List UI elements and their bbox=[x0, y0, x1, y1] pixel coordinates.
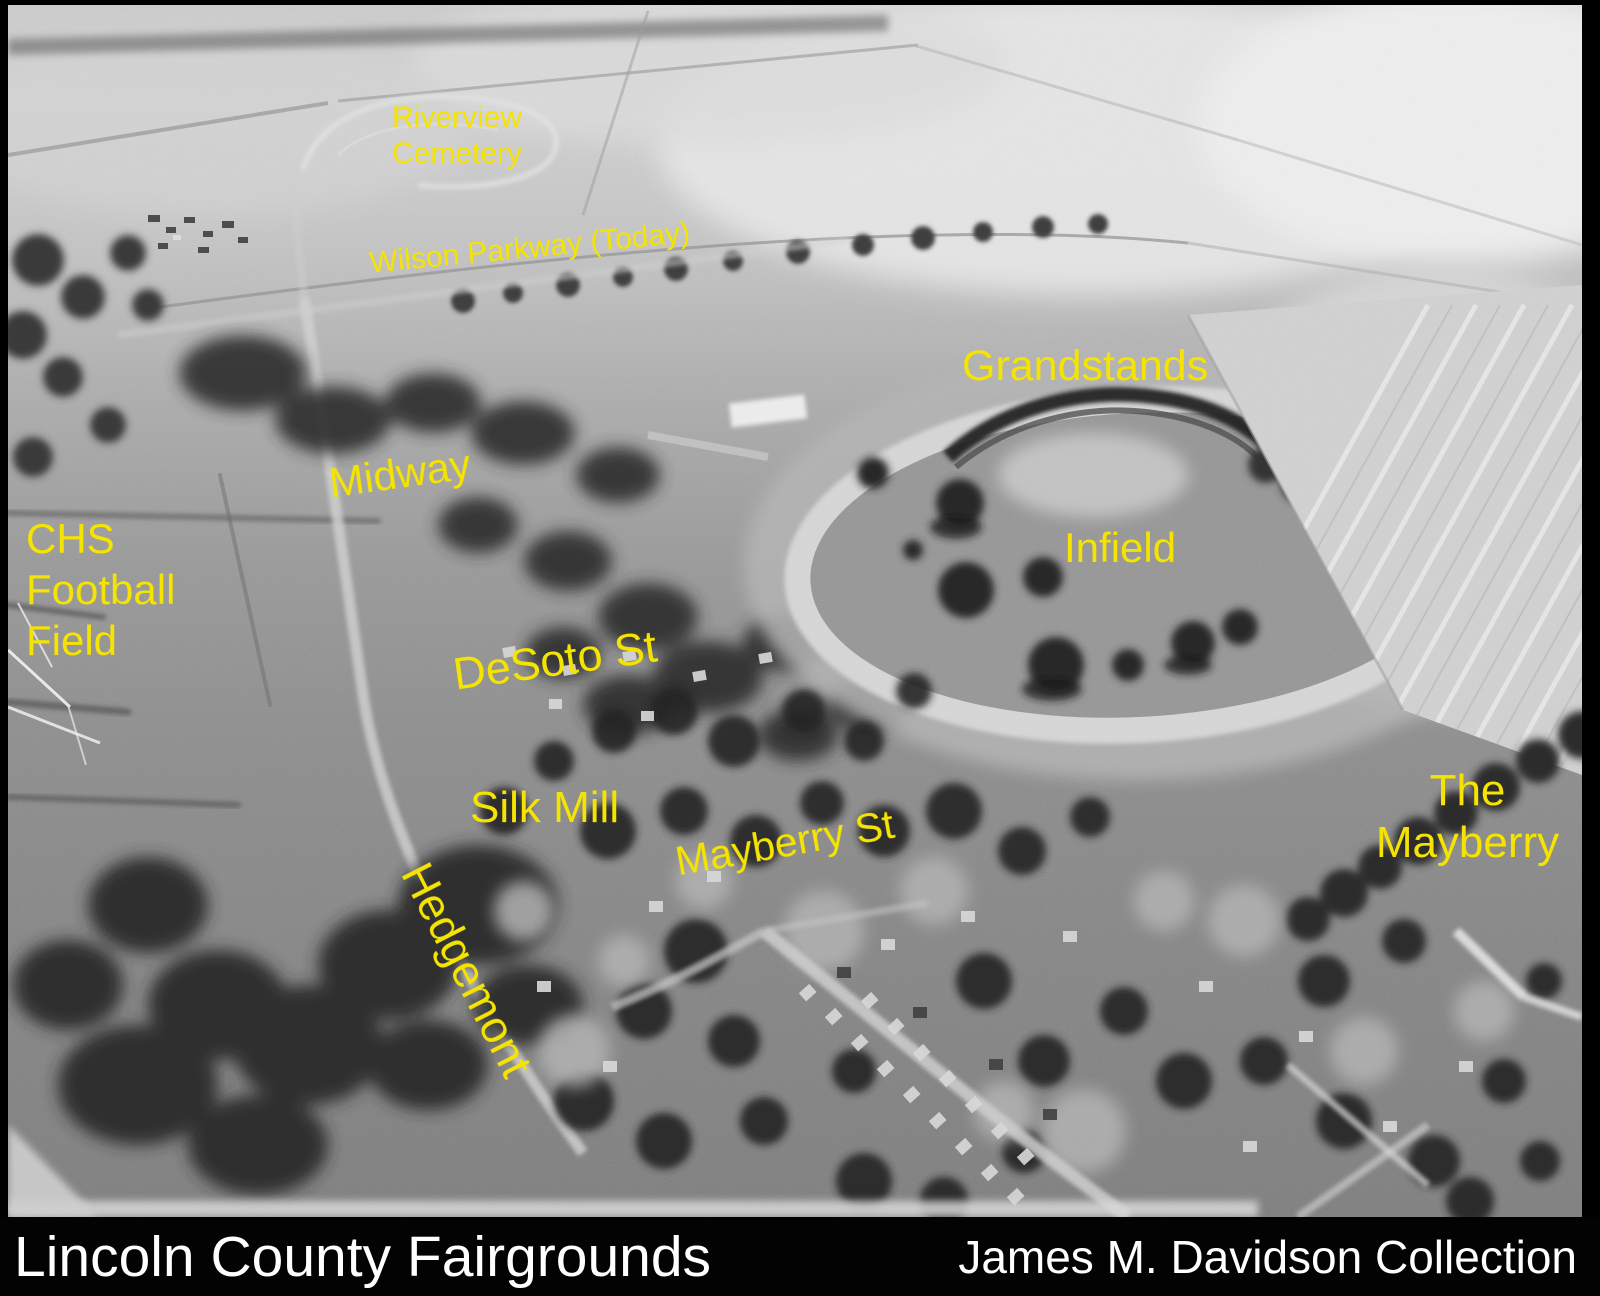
label-the-mayberry-line2: Mayberry bbox=[1360, 817, 1575, 869]
label-chs-football-field: CHS Football Field bbox=[26, 513, 175, 666]
label-riverview-line1: Riverview bbox=[392, 100, 522, 136]
film-grain-overlay bbox=[8, 5, 1582, 1217]
photo-frame: Riverview Cemetery Wilson Parkway (Today… bbox=[0, 0, 1600, 1296]
label-the-mayberry: The Mayberry bbox=[1360, 765, 1575, 869]
label-chs-line2: Football bbox=[26, 564, 175, 615]
label-the-mayberry-line1: The bbox=[1360, 765, 1575, 817]
label-riverview-line2: Cemetery bbox=[392, 136, 522, 172]
caption-bar: Lincoln County Fairgrounds James M. Davi… bbox=[0, 1217, 1600, 1296]
aerial-photo-artwork bbox=[8, 5, 1582, 1217]
aerial-photo: Riverview Cemetery Wilson Parkway (Today… bbox=[8, 5, 1582, 1217]
label-silk-mill: Silk Mill bbox=[470, 783, 619, 832]
label-grandstands: Grandstands bbox=[962, 342, 1208, 390]
caption-credit: James M. Davidson Collection bbox=[958, 1230, 1577, 1284]
label-riverview-cemetery: Riverview Cemetery bbox=[392, 100, 522, 172]
label-chs-line1: CHS bbox=[26, 513, 175, 564]
label-infield: Infield bbox=[1064, 524, 1176, 571]
caption-title: Lincoln County Fairgrounds bbox=[14, 1224, 711, 1290]
label-chs-line3: Field bbox=[26, 615, 175, 666]
